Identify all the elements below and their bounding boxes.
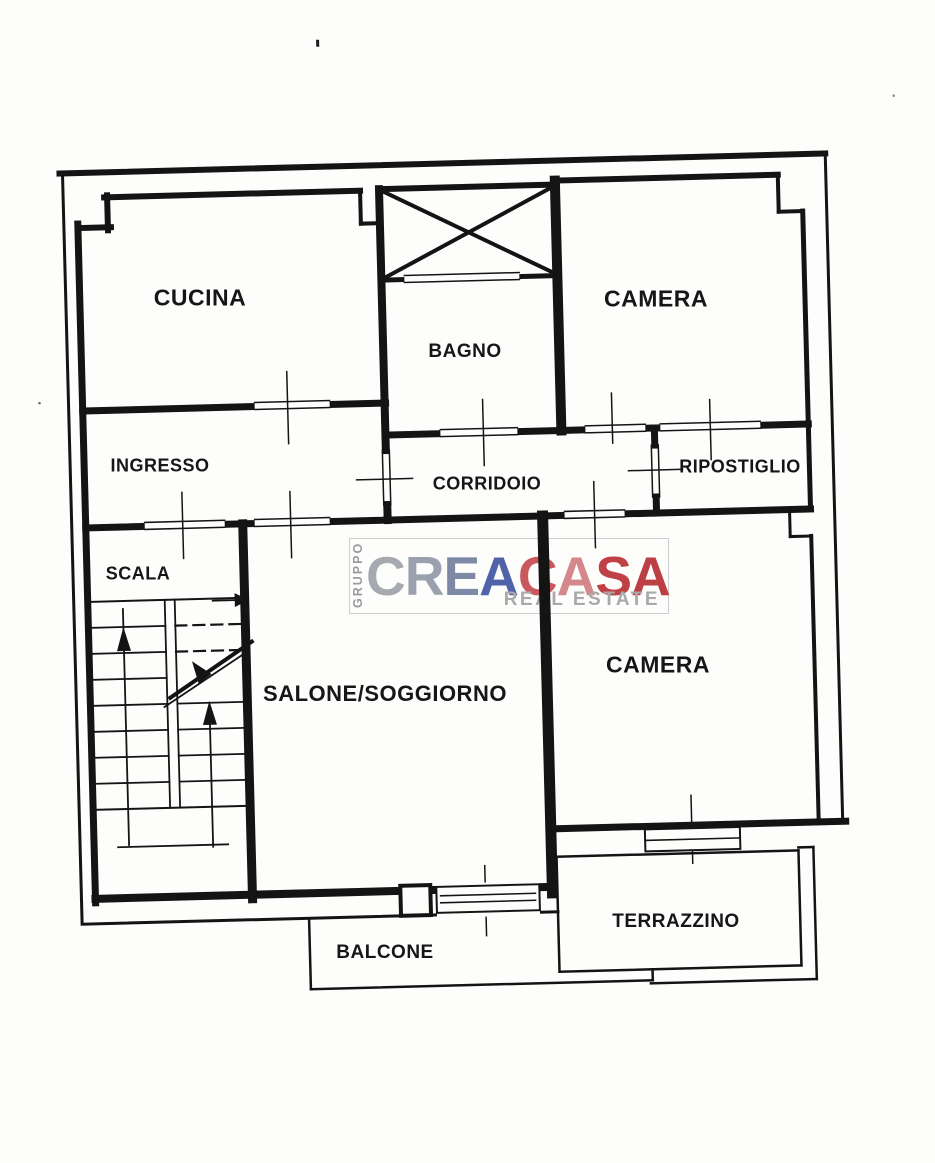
room-label-corridoio: CORRIDOIO [433, 474, 542, 495]
room-label-bagno: BAGNO [428, 341, 501, 363]
stairs [88, 593, 258, 850]
room-label-camera-top: CAMERA [604, 286, 708, 313]
room-label-terrazzino: TERRAZZINO [612, 911, 739, 933]
room-label-ripostiglio: RIPOSTIGLIO [679, 457, 801, 478]
room-label-salone: SALONE/SOGGIORNO [263, 681, 507, 707]
window-symbols [399, 827, 742, 919]
room-label-camera-bottom: CAMERA [606, 652, 710, 679]
room-label-balcone: BALCONE [336, 942, 433, 964]
balcony-terrace-outline [308, 847, 817, 992]
room-label-cucina: CUCINA [154, 285, 246, 312]
room-label-scala: SCALA [106, 564, 171, 585]
shaft-x-icon [382, 187, 555, 278]
room-label-ingresso: INGRESSO [110, 456, 209, 477]
floor-plan-canvas: GRUPPO CREACASA REAL ESTATE [0, 0, 935, 1163]
pillar [400, 885, 431, 916]
